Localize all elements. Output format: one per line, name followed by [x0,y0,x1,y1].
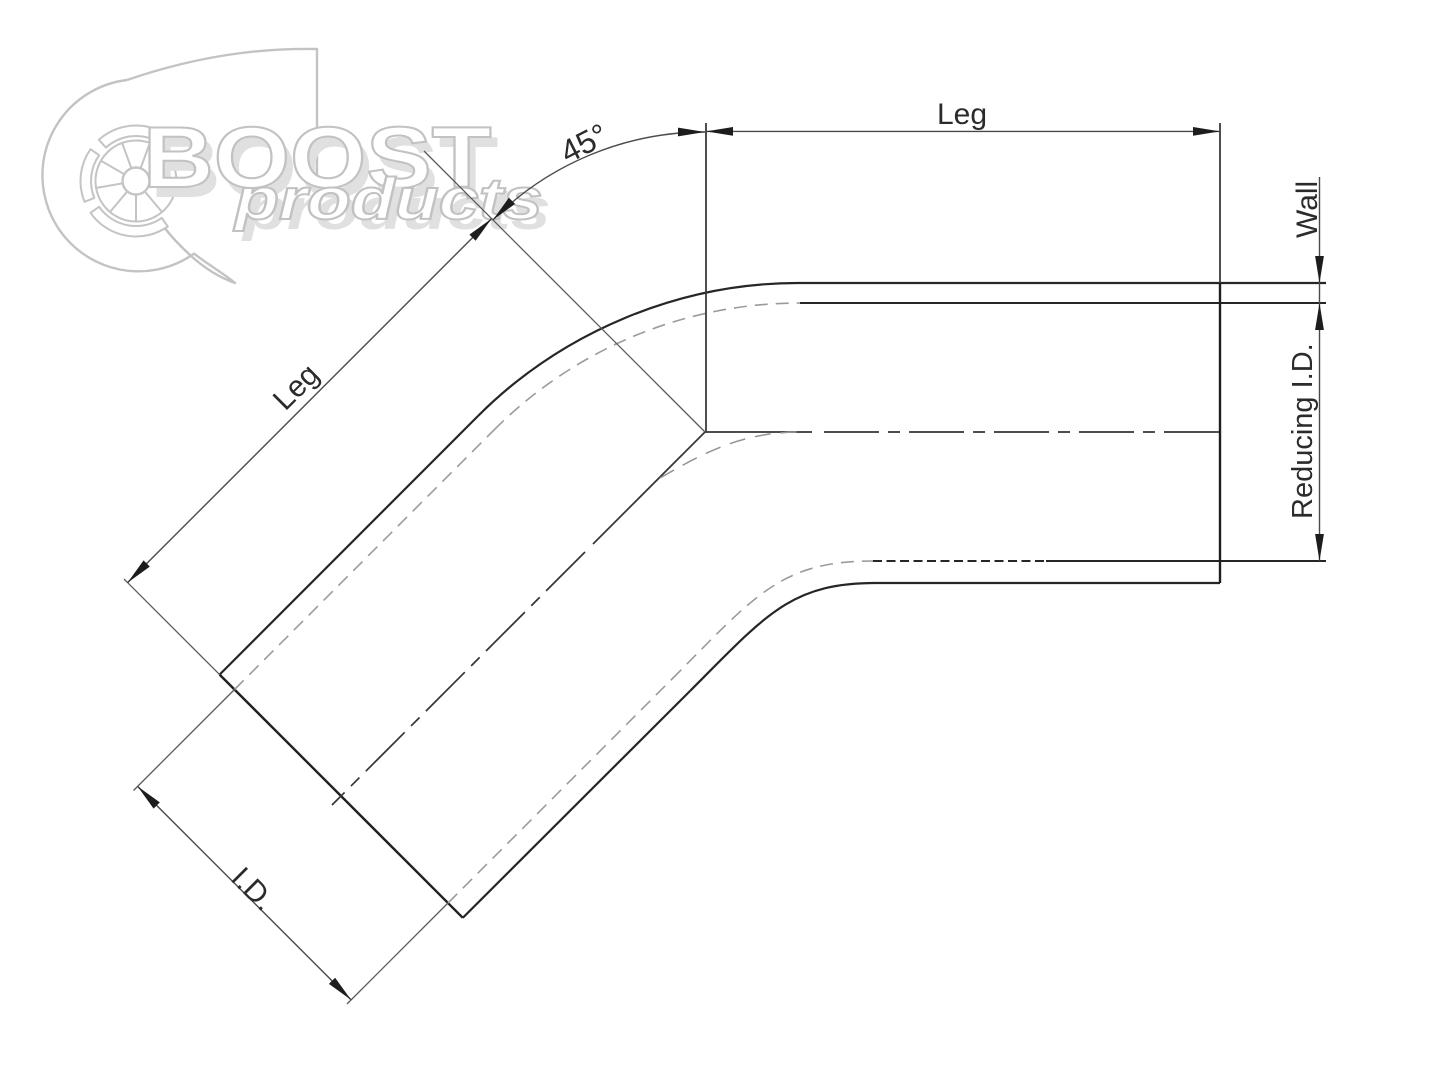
svg-text:Wall: Wall [1291,181,1324,238]
svg-text:Leg: Leg [937,98,987,131]
svg-text:products: products [233,167,543,232]
svg-text:Reducing I.D.: Reducing I.D. [1287,343,1319,519]
